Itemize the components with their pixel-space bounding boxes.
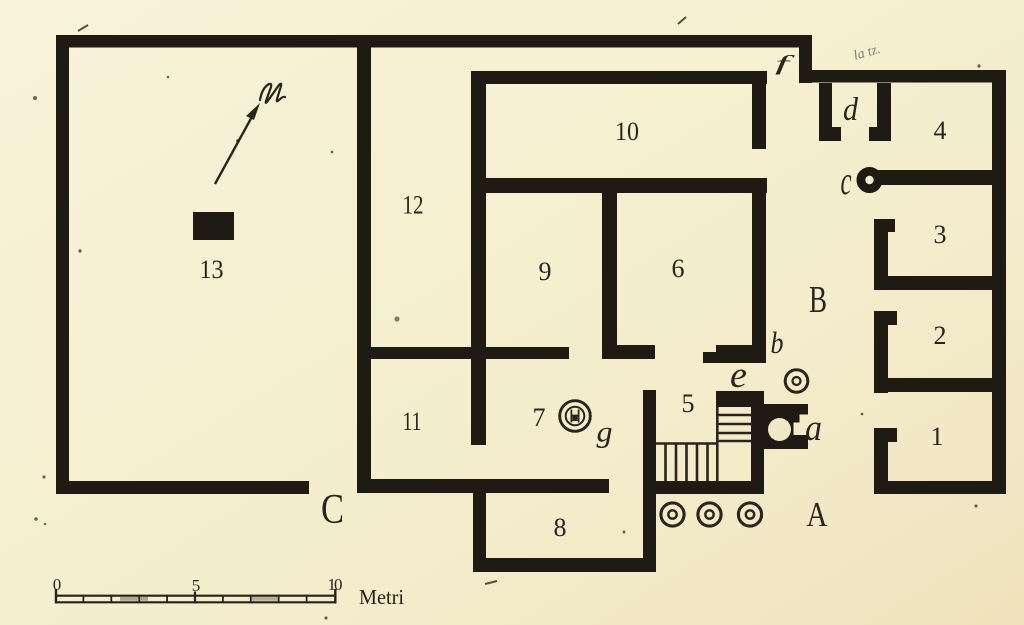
svg-text:d: d: [843, 92, 858, 128]
svg-text:4: 4: [934, 116, 947, 145]
svg-text:10: 10: [328, 575, 343, 594]
svg-text:b: b: [771, 325, 784, 360]
svg-text:3: 3: [934, 220, 947, 249]
svg-text:2: 2: [934, 321, 947, 350]
svg-text:5: 5: [192, 576, 201, 595]
svg-text:Metri: Metri: [359, 585, 404, 609]
svg-text:c: c: [841, 158, 852, 203]
svg-text:6: 6: [672, 254, 685, 283]
svg-text:a: a: [805, 408, 822, 449]
svg-text:5: 5: [682, 389, 695, 418]
svg-text:12: 12: [403, 191, 424, 220]
svg-text:10: 10: [615, 117, 639, 146]
svg-text:e: e: [730, 355, 747, 396]
svg-text:1: 1: [931, 422, 944, 451]
svg-text:A: A: [807, 495, 829, 534]
svg-text:g: g: [597, 416, 613, 449]
svg-text:11: 11: [403, 407, 422, 436]
svg-text:C: C: [321, 487, 344, 533]
svg-text:B: B: [809, 279, 827, 321]
svg-text:13: 13: [200, 255, 224, 284]
svg-text:8: 8: [554, 513, 567, 542]
svg-text:9: 9: [539, 257, 552, 286]
svg-text:0: 0: [53, 575, 62, 594]
svg-text:7: 7: [533, 403, 546, 432]
